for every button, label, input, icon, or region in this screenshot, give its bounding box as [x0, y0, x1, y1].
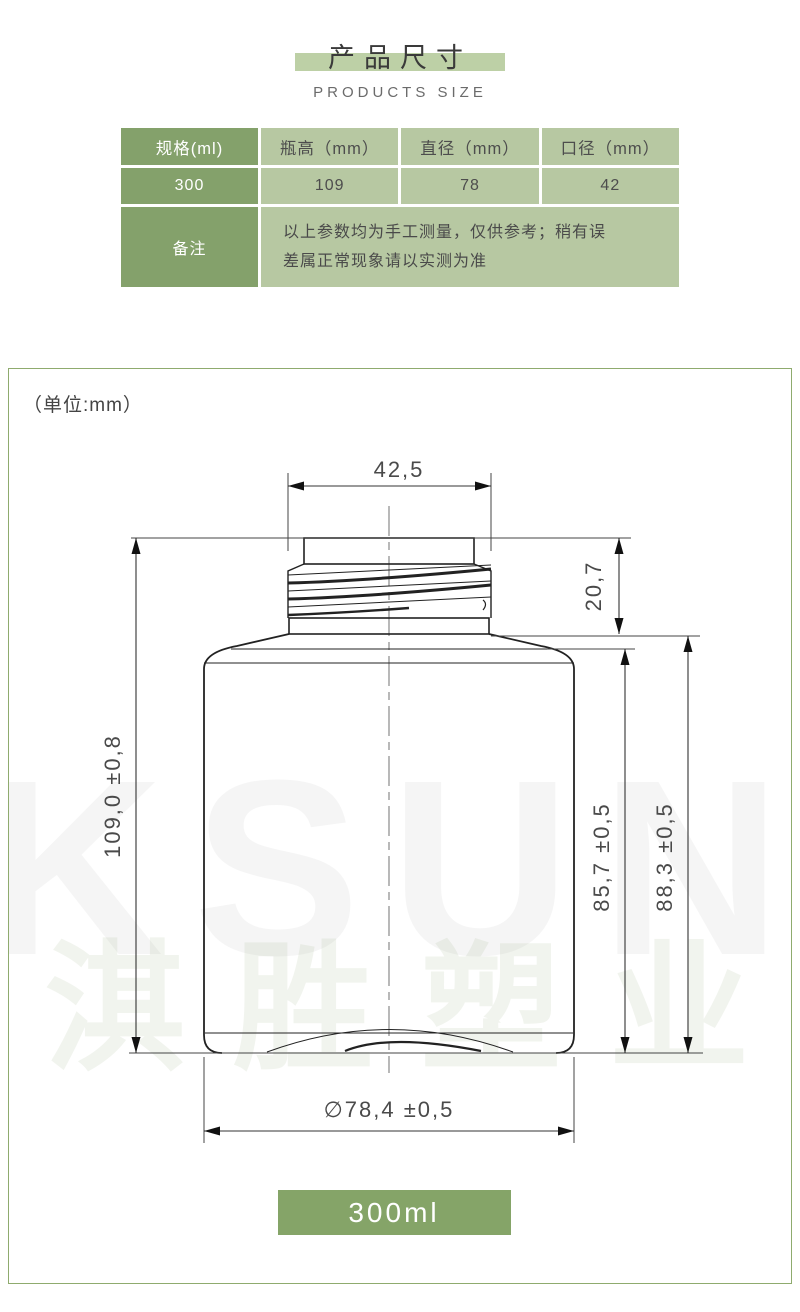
note-label: 备注 [121, 207, 258, 287]
capacity-badge: 300ml [278, 1190, 511, 1235]
value-height: 109 [261, 168, 398, 204]
value-diameter: 78 [401, 168, 538, 204]
spec-table-value-row: 300 109 78 42 [121, 168, 679, 204]
col-header-capacity: 规格(ml) [121, 128, 258, 165]
col-header-height: 瓶高（mm） [261, 128, 398, 165]
unit-label: （单位:mm） [23, 394, 143, 416]
dim-diameter: ∅78,4 ±0,5 [324, 1097, 455, 1122]
spec-table-header-row: 规格(ml) 瓶高（mm） 直径（mm） 口径（mm） [121, 128, 679, 165]
note-text: 以上参数均为手工测量，仅供参考；稍有误差属正常现象请以实测为准 [261, 207, 679, 287]
col-header-mouth: 口径（mm） [542, 128, 679, 165]
value-mouth: 42 [542, 168, 679, 204]
dim-total-height: 109,0 ±0,8 [100, 734, 125, 858]
page-header: 产品尺寸 PRODUCTS SIZE [0, 36, 800, 101]
technical-drawing-panel: KSUN 淇胜塑业 （单位:mm） [8, 368, 792, 1284]
col-header-diameter: 直径（mm） [401, 128, 538, 165]
value-capacity: 300 [121, 168, 258, 204]
page-subtitle: PRODUCTS SIZE [0, 84, 800, 101]
dim-neck-height: 20,7 [581, 561, 606, 612]
dim-body-height-inner: 85,7 ±0,5 [589, 802, 614, 912]
bottle-dimension-drawing: KSUN 淇胜塑业 （单位:mm） [9, 369, 791, 1283]
dim-body-height-outer: 88,3 ±0,5 [652, 802, 677, 912]
spec-table: 规格(ml) 瓶高（mm） 直径（mm） 口径（mm） 300 109 78 4… [118, 125, 682, 290]
watermark-chinese: 淇胜塑业 [45, 930, 791, 1087]
spec-table-note-row: 备注 以上参数均为手工测量，仅供参考；稍有误差属正常现象请以实测为准 [121, 207, 679, 287]
dim-neck-width: 42,5 [374, 457, 425, 482]
page-title: 产品尺寸 [0, 36, 800, 75]
capacity-badge-label: 300ml [348, 1197, 439, 1228]
